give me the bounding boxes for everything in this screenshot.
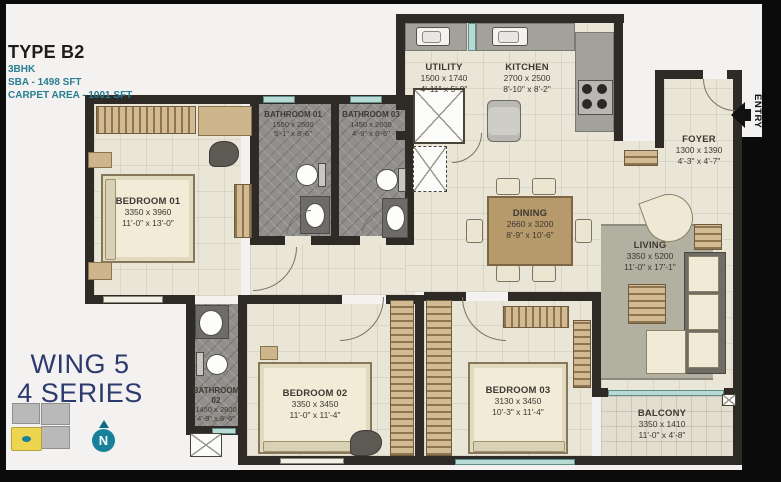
frame-edge (0, 0, 6, 482)
washing-machine (487, 100, 521, 142)
plan-sba: SBA - 1498 SFT (8, 76, 132, 89)
foyer-console (624, 150, 658, 166)
plan-carpet-area: CARPET AREA - 1001 SFT (8, 89, 132, 102)
frame-edge (0, 0, 781, 4)
stove (578, 80, 613, 115)
floor-balcony (601, 396, 739, 457)
toilet (296, 164, 318, 186)
key-plan-unit-highlighted (11, 427, 42, 451)
toilet-tank (196, 352, 204, 376)
drain-box (722, 394, 736, 406)
entry-label: ENTRY (752, 94, 763, 142)
wall (415, 295, 424, 465)
wall (655, 70, 664, 148)
chair (350, 430, 382, 456)
key-plan-unit (12, 403, 40, 424)
key-plan-unit (41, 403, 70, 425)
toilet-tank (398, 168, 406, 192)
wall (331, 95, 339, 240)
wing-label: WING 5 (14, 350, 146, 379)
duct-shaft (190, 433, 222, 457)
wall (614, 14, 623, 141)
compass-circle: N (92, 429, 115, 452)
dresser (234, 184, 252, 238)
title-block: TYPE B2 3BHK SBA - 1498 SFT CARPET AREA … (8, 42, 132, 102)
dining-chair (532, 178, 556, 195)
nightstand (88, 262, 112, 280)
dining-chair (466, 219, 483, 243)
wall (655, 70, 703, 79)
dining-table (487, 196, 573, 266)
ottoman (646, 330, 686, 374)
window (455, 459, 575, 465)
wall (396, 14, 624, 23)
stove-burner (597, 99, 607, 109)
utility-sink (416, 27, 450, 46)
wall (238, 295, 247, 465)
key-plan-marker (22, 436, 31, 442)
kitchen-sink (492, 27, 528, 46)
dining-chair (496, 178, 520, 195)
dresser (573, 320, 591, 388)
wash-basin (386, 205, 405, 231)
entry-arrow-icon (731, 102, 745, 128)
nightstand (260, 346, 278, 360)
frame-edge (0, 470, 781, 482)
stove-burner (582, 84, 592, 94)
wardrobe (503, 306, 569, 328)
dining-chair (496, 265, 520, 282)
plan-type-title: TYPE B2 (8, 42, 132, 63)
chair (209, 141, 239, 167)
wash-basin (199, 310, 223, 336)
stove-burner (582, 99, 592, 109)
window (280, 458, 344, 464)
frame-edge (742, 137, 781, 482)
toilet (376, 169, 398, 191)
plan-config: 3BHK (8, 63, 132, 76)
door-opening (285, 236, 311, 245)
sliding-door-window (608, 390, 724, 396)
window (103, 296, 163, 303)
wall (592, 292, 601, 396)
dining-chair (532, 265, 556, 282)
coffee-table (628, 284, 666, 324)
wall (238, 295, 342, 304)
entry-arrow-stem (744, 109, 751, 121)
stove-burner (597, 84, 607, 94)
wall (592, 388, 608, 397)
nightstand (88, 152, 112, 168)
pillow (105, 179, 116, 260)
toilet (206, 354, 228, 375)
sofa-cushion (688, 332, 719, 368)
wall (508, 292, 600, 301)
toilet-tank (318, 163, 326, 187)
dining-chair (575, 219, 592, 243)
wall (727, 70, 742, 79)
wardrobe (96, 106, 196, 134)
pillow (473, 441, 565, 452)
sofa-cushion (688, 294, 719, 330)
window (468, 23, 476, 51)
wardrobe (390, 300, 414, 456)
north-arrow-icon (99, 420, 109, 428)
window (350, 96, 382, 103)
key-plan (10, 401, 70, 451)
wall (186, 295, 195, 435)
wing-series-block: WING 5 4 SERIES (14, 350, 146, 408)
floorplan-page: BEDROOM 01 3350 x 3960 11'-0" x 13'-0" B… (0, 0, 781, 482)
sofa-cushion (688, 256, 719, 292)
side-table (694, 224, 722, 250)
desk (198, 106, 252, 136)
north-indicator: N (92, 420, 116, 454)
duct-shaft (413, 146, 447, 192)
wardrobe (426, 300, 452, 456)
window (263, 96, 295, 103)
key-plan-unit (41, 426, 70, 449)
